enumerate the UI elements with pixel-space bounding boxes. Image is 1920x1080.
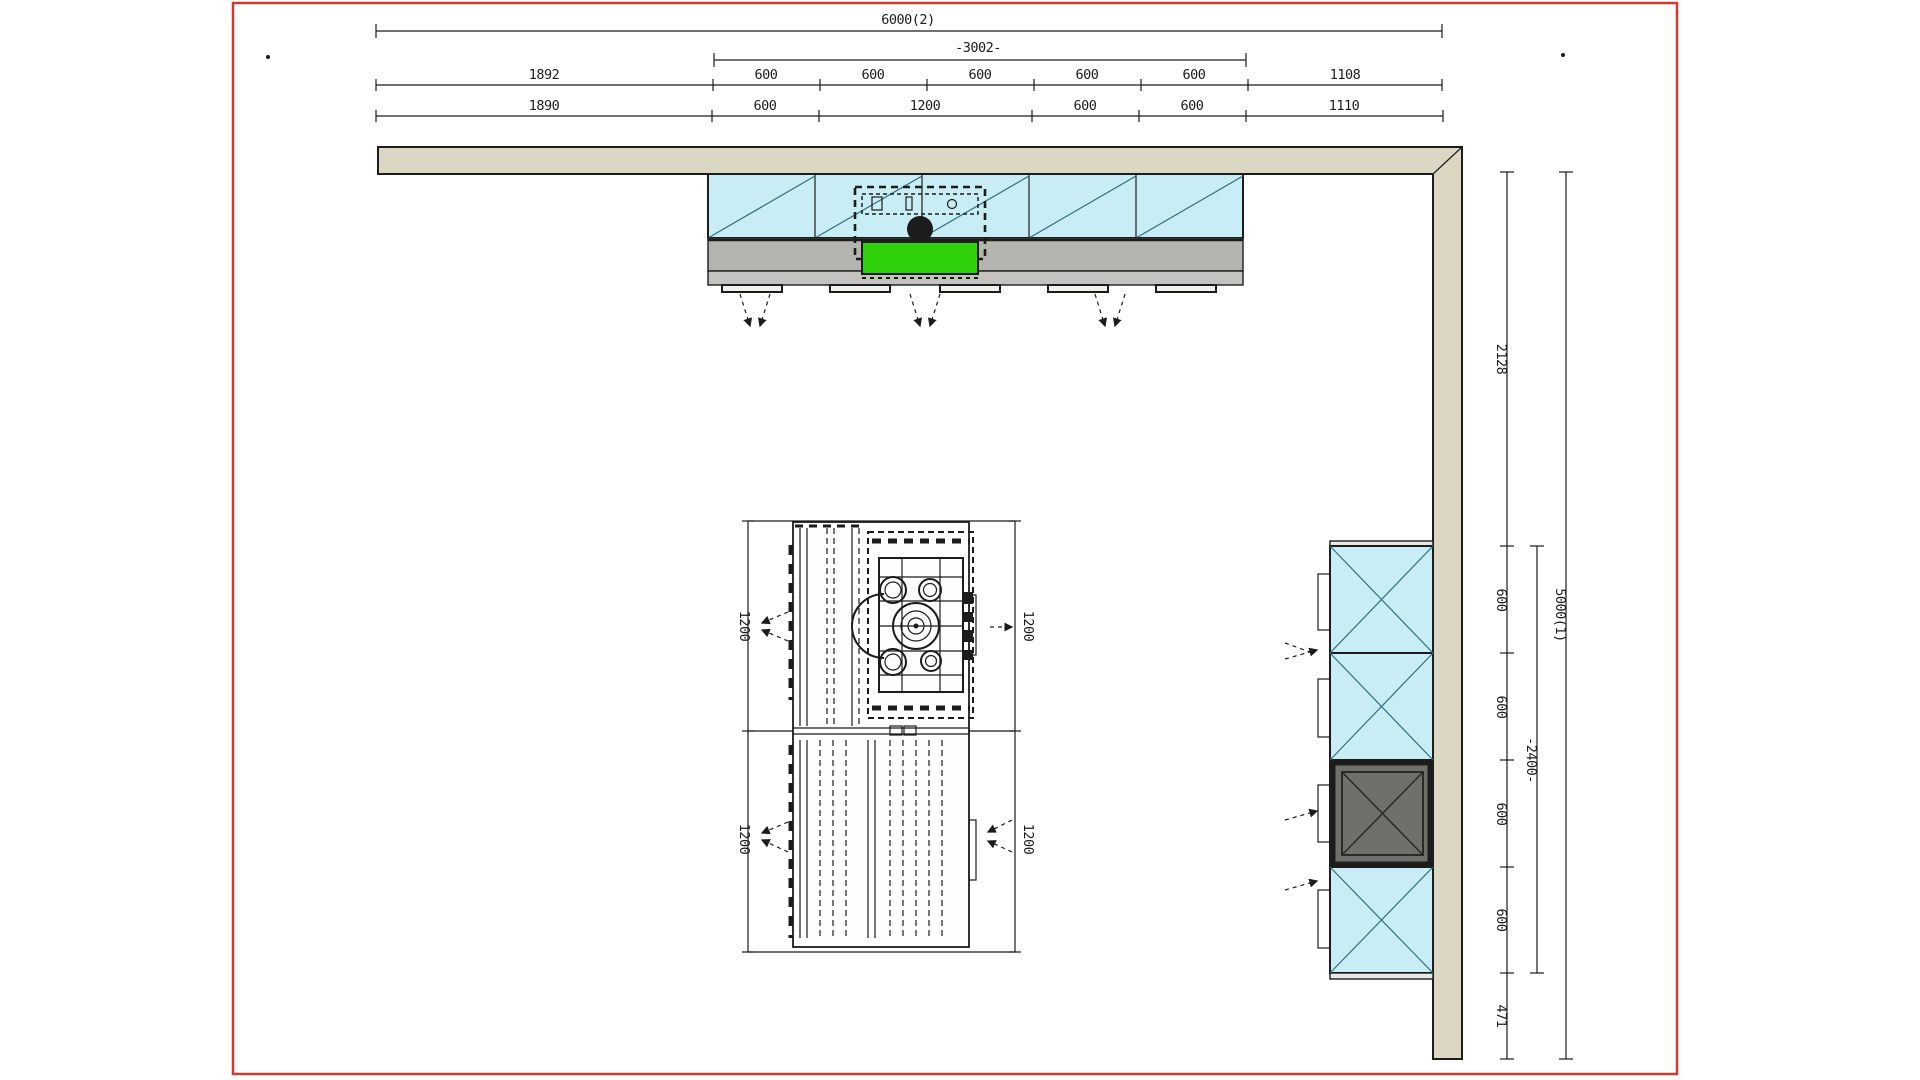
dim-row1-2: 600 [862, 67, 885, 83]
dim-right-1: 600 [1493, 589, 1509, 612]
dim-row1-4: 600 [1076, 67, 1099, 83]
tall-cabinet-run-right [1285, 541, 1433, 979]
dim-row1-0: 1892 [529, 67, 560, 83]
dim-right-2: 600 [1493, 696, 1509, 719]
dim-row2-1: 600 [754, 98, 777, 114]
right-dimensions: 2128 600 600 600 600 471 -2400- 5000(1) [1493, 172, 1573, 1059]
cooktop-zone-green [862, 242, 978, 274]
dim-top-total: 6000(2) [881, 12, 934, 28]
dim-top-sub: -3002- [955, 40, 1001, 56]
wall-cabinet-run-top [708, 174, 1243, 292]
dim-right-total: 5000(1) [1552, 588, 1568, 641]
island-dim-top-right: 1200 [1020, 611, 1036, 642]
dim-row2-4: 600 [1181, 98, 1204, 114]
dim-row1-5: 600 [1183, 67, 1206, 83]
dim-right-3: 600 [1493, 803, 1509, 826]
door-swing-arrows-top [740, 294, 1125, 326]
dim-right-5: 471 [1493, 1005, 1509, 1028]
stray-dot-right [1561, 53, 1565, 57]
island: 1200 1200 1200 1200 [736, 521, 1036, 952]
upper-cabinets [708, 174, 1243, 238]
island-dim-bottom-right: 1200 [1020, 824, 1036, 855]
dim-right-4: 600 [1493, 909, 1509, 932]
dim-row2-5: 1110 [1329, 98, 1360, 114]
dim-right-sub: -2400- [1523, 737, 1539, 783]
island-dim-top-left: 1200 [736, 611, 752, 642]
door-swing-arrows-right-run [1285, 643, 1317, 890]
stray-dot-left [266, 55, 270, 59]
island-dim-bottom-left: 1200 [736, 824, 752, 855]
dim-row1-3: 600 [969, 67, 992, 83]
hood-fan-icon [907, 216, 933, 242]
dim-row1-6: 1108 [1330, 67, 1361, 83]
dim-right-0: 2128 [1493, 344, 1509, 375]
dim-row2-0: 1890 [529, 98, 560, 114]
floor-plan-drawing: 6000(2) -3002- 1892 600 600 600 600 600 … [0, 0, 1920, 1080]
run-bottom-cap [1330, 973, 1433, 979]
dim-row1-1: 600 [755, 67, 778, 83]
plan-canvas: 6000(2) -3002- 1892 600 600 600 600 600 … [0, 0, 1920, 1080]
tall-cabinet-handles [1318, 574, 1330, 948]
cabinet-feet [722, 285, 1216, 292]
dim-row2-3: 600 [1074, 98, 1097, 114]
dim-row2-2: 1200 [910, 98, 941, 114]
top-dimensions: 6000(2) -3002- 1892 600 600 600 600 600 … [376, 12, 1443, 122]
